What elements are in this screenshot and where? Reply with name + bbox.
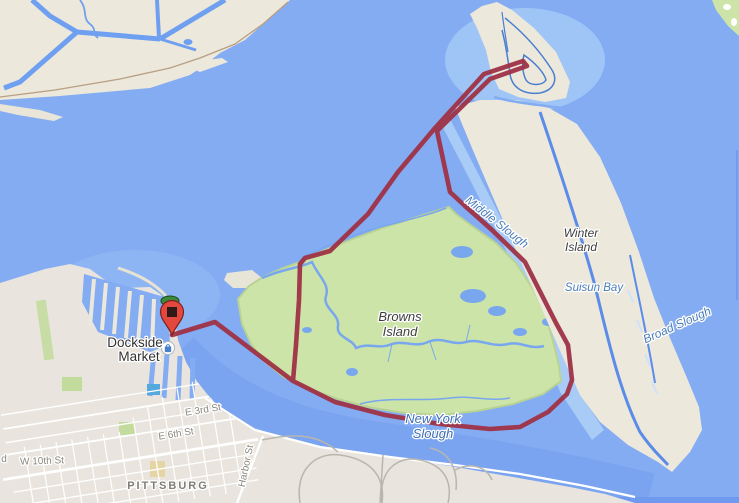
browns-island-label-line2: Island — [383, 324, 418, 339]
winter-island-label-line1: Winter — [564, 226, 600, 240]
poi-label-line1: Dockside — [107, 335, 163, 350]
suisun-bay-label: Suisun Bay — [565, 282, 624, 294]
map-canvas[interactable]: Dockside Market Browns Island Winter Isl… — [0, 0, 739, 503]
pin-square — [167, 307, 177, 317]
pittsburg-label: PITTSBURG — [127, 480, 209, 492]
w-10th-st-label: W 10th St — [20, 455, 64, 468]
browns-island-label-line1: Browns — [378, 309, 422, 324]
pool — [147, 384, 160, 395]
map-screenshot: Dockside Market Browns Island Winter Isl… — [0, 0, 739, 503]
shopping-bag-icon — [165, 347, 171, 353]
poi-label-line2: Market — [118, 349, 160, 364]
partial-street-label: d — [1, 454, 7, 465]
winter-island-label-line2: Island — [565, 240, 597, 254]
park-patch — [62, 377, 82, 391]
dockside-market-poi[interactable] — [162, 342, 175, 355]
new-york-slough-label-line2: Slough — [413, 426, 453, 441]
delta-pond — [184, 39, 193, 45]
new-york-slough-label-line1: New York — [405, 411, 462, 426]
